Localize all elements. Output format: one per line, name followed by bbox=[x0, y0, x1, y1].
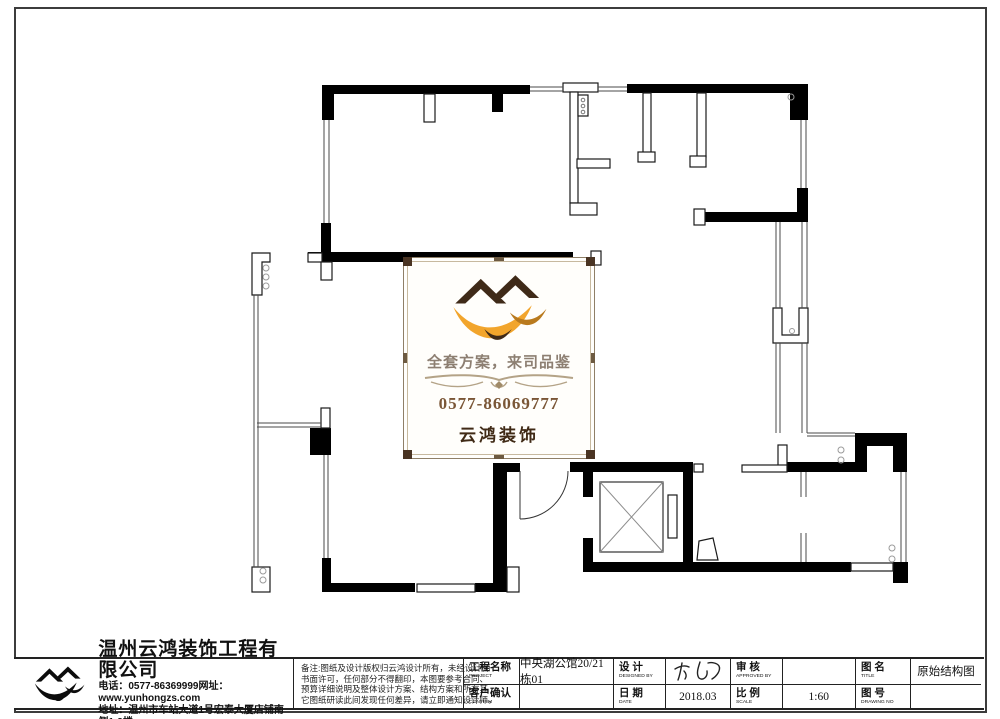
notes-section: 备注:图纸及设计版权归云鸿设计所有，未经设计师 书面许可，任何部分不得翻印，本图… bbox=[293, 659, 463, 708]
slogan-text: 全套方案，来司品鉴 bbox=[427, 351, 571, 372]
watermark-brand: 云鸿装饰 bbox=[459, 421, 539, 446]
design-section: 设 计 DESIGNED BY 日 期 DATE 2018.03 bbox=[613, 659, 730, 708]
drawing-sheet: 全套方案，来司品鉴 0577-86069777 云鸿装饰 温州云鸿装饰工程有限公… bbox=[0, 0, 1000, 719]
company-phone-line: 电话：0577-86369999网址：www.yunhongzs.com bbox=[98, 681, 293, 705]
confirm-label-en: CONFIRM bbox=[469, 700, 514, 706]
company-name: 温州云鸿装饰工程有限公司 bbox=[98, 639, 293, 681]
watermark-phone: 0577-86069777 bbox=[439, 394, 560, 414]
project-value: 中央湖公馆20/21栋01 bbox=[520, 659, 613, 685]
flourish-ornament bbox=[421, 372, 577, 392]
drawing-title-section: 图 名 TITLE 原始结构图 图 号 DRAWING NO bbox=[855, 659, 982, 708]
design-label: 设 计 bbox=[619, 662, 665, 673]
company-section: 温州云鸿装饰工程有限公司 电话：0577-86369999网址：www.yunh… bbox=[14, 659, 293, 708]
project-label-en: PROJECT bbox=[469, 674, 514, 680]
company-address-line: 地址：温州市车站大道1号宏泰大厦店铺南侧1-3楼 bbox=[98, 705, 293, 719]
title-block: 温州云鸿装饰工程有限公司 电话：0577-86369999网址：www.yunh… bbox=[14, 657, 984, 710]
design-label-en: DESIGNED BY bbox=[619, 674, 660, 680]
confirm-label: 客户确认 bbox=[469, 688, 519, 699]
elevator bbox=[600, 482, 663, 552]
date-label-en: DATE bbox=[619, 700, 660, 706]
confirm-value bbox=[520, 685, 613, 711]
number-label: 图 号 bbox=[861, 688, 910, 699]
door-swing bbox=[520, 471, 568, 519]
scale-label: 比 例 bbox=[736, 688, 782, 699]
project-section: 工程名称 PROJECT 中央湖公馆20/21栋01 客户确认 CONFIRM bbox=[463, 659, 613, 708]
scale-value: 1:60 bbox=[783, 685, 855, 711]
title-label-en: TITLE bbox=[861, 674, 905, 680]
approve-label: 审 核 bbox=[736, 662, 782, 673]
company-logo-icon bbox=[30, 659, 88, 709]
approve-label-en: APPROVED BY bbox=[736, 674, 777, 680]
approve-section: 审 核 APPROVED BY 比 例 SCALE 1:60 bbox=[730, 659, 855, 708]
note-line: 书面许可，任何部分不得翻印，本图要参考合同、 bbox=[301, 674, 456, 685]
title-label: 图 名 bbox=[861, 662, 910, 673]
drawing-title-value: 原始结构图 bbox=[911, 659, 981, 685]
note-line: 备注:图纸及设计版权归云鸿设计所有，未经设计师 bbox=[301, 663, 456, 674]
designer-signature bbox=[666, 659, 730, 685]
date-value: 2018.03 bbox=[666, 685, 730, 711]
watermark-panel: 全套方案，来司品鉴 0577-86069777 云鸿装饰 bbox=[403, 257, 595, 459]
note-line: 它图纸研读此间发现任何差异，请立即通知设计师。 bbox=[301, 695, 456, 706]
number-label-en: DRAWING NO bbox=[861, 700, 905, 706]
scale-label-en: SCALE bbox=[736, 700, 777, 706]
yunhong-logo-icon bbox=[440, 267, 558, 349]
date-label: 日 期 bbox=[619, 688, 665, 699]
note-line: 预算详细说明及整体设计方案、结构方案和所有其 bbox=[301, 684, 456, 695]
project-label: 工程名称 bbox=[469, 662, 519, 673]
approve-value bbox=[783, 659, 855, 685]
drawing-number-value bbox=[911, 685, 981, 711]
